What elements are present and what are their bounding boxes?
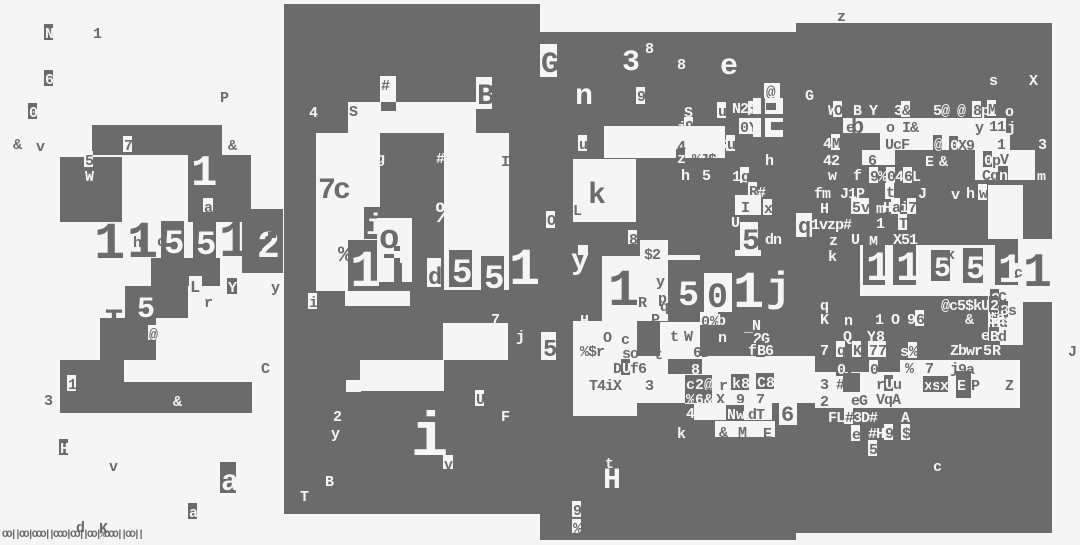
svg-text:H: H	[603, 464, 620, 498]
svg-text:6: 6	[638, 361, 647, 378]
svg-text:y: y	[975, 120, 984, 137]
svg-text:7: 7	[908, 200, 916, 217]
svg-text:0: 0	[740, 120, 749, 137]
svg-text:N: N	[45, 26, 54, 43]
svg-text:5: 5	[137, 293, 155, 327]
svg-text:4: 4	[309, 105, 318, 122]
svg-text:x: x	[940, 378, 949, 395]
svg-text:8: 8	[645, 41, 654, 58]
svg-text:g: g	[709, 330, 718, 347]
svg-text:z: z	[829, 233, 837, 250]
svg-text:U: U	[851, 232, 860, 249]
svg-text:w: w	[979, 186, 988, 203]
svg-text:P: P	[651, 312, 660, 329]
svg-text:1: 1	[875, 312, 884, 329]
svg-text:R: R	[992, 343, 1001, 360]
svg-text:5: 5	[164, 226, 184, 264]
svg-text:t: t	[654, 347, 662, 364]
svg-text:2: 2	[652, 247, 661, 264]
svg-text:#: #	[869, 410, 878, 427]
svg-text:s: s	[900, 344, 909, 361]
svg-text:v: v	[951, 187, 960, 204]
svg-text:1: 1	[866, 245, 891, 293]
svg-text:L: L	[836, 410, 845, 427]
svg-text:E: E	[763, 426, 772, 443]
svg-text:4: 4	[895, 169, 904, 186]
svg-text:n: n	[718, 330, 727, 347]
svg-text:5: 5	[196, 227, 216, 265]
svg-text:1: 1	[94, 215, 125, 274]
svg-text:g: g	[990, 168, 999, 185]
svg-text:5: 5	[852, 200, 861, 217]
svg-text:U: U	[476, 392, 485, 409]
svg-text:7c: 7c	[318, 174, 350, 208]
svg-text:S: S	[349, 104, 358, 121]
svg-text:5: 5	[966, 251, 985, 288]
svg-text:3: 3	[645, 378, 654, 395]
svg-text:H: H	[820, 201, 828, 218]
svg-text:9: 9	[637, 89, 646, 106]
svg-text:R: R	[638, 295, 647, 312]
svg-text:6: 6	[781, 403, 794, 428]
svg-text:r: r	[974, 343, 982, 360]
svg-text:@: @	[941, 103, 950, 120]
svg-text:1: 1	[896, 245, 921, 293]
svg-text:a: a	[189, 505, 198, 522]
svg-text:j: j	[766, 266, 791, 314]
svg-text:r: r	[596, 344, 604, 361]
svg-text:Y: Y	[228, 280, 237, 297]
svg-text:n: n	[773, 232, 782, 249]
svg-text:Y: Y	[869, 103, 878, 120]
svg-text:e: e	[852, 427, 861, 444]
svg-text:a: a	[204, 200, 213, 217]
svg-text:z: z	[837, 9, 845, 26]
svg-text:O: O	[547, 213, 556, 230]
svg-text:1: 1	[608, 262, 639, 321]
svg-text:0: 0	[701, 314, 710, 331]
svg-text:C: C	[261, 361, 270, 378]
svg-text:e: e	[720, 50, 737, 84]
svg-text:1: 1	[997, 119, 1006, 136]
svg-text:M: M	[988, 102, 997, 119]
svg-text:s: s	[1004, 313, 1013, 330]
svg-text:5: 5	[452, 255, 472, 293]
svg-text:w: w	[828, 168, 837, 185]
svg-text:6: 6	[765, 343, 774, 360]
svg-text:u: u	[579, 137, 587, 154]
svg-text:5: 5	[983, 343, 992, 360]
svg-text:s: s	[989, 73, 998, 90]
svg-text:&: &	[902, 103, 911, 120]
svg-text:A: A	[892, 392, 901, 409]
svg-text:6: 6	[45, 72, 54, 89]
svg-text:k: k	[732, 376, 741, 393]
svg-text:8: 8	[741, 376, 750, 393]
svg-text:F: F	[933, 329, 942, 346]
svg-text:8: 8	[629, 232, 638, 249]
svg-text:j: j	[516, 329, 524, 346]
svg-text:L: L	[912, 169, 921, 186]
svg-text:5: 5	[869, 442, 878, 459]
svg-text:OO||OO|OOO||OOO|CO||OO|%OOO||O: OO||OO|OOO||OOO|CO||OO|%OOO||OO||	[2, 529, 142, 540]
svg-text:y: y	[331, 426, 340, 443]
svg-text:&: &	[939, 154, 948, 171]
svg-text:3: 3	[622, 46, 639, 80]
svg-text:J: J	[1068, 344, 1076, 361]
svg-text:0: 0	[29, 105, 38, 122]
svg-text:E: E	[759, 137, 768, 154]
svg-text:@: @	[149, 327, 158, 344]
svg-text:4: 4	[686, 406, 695, 423]
svg-text:1: 1	[127, 214, 158, 273]
svg-text:1: 1	[93, 26, 102, 43]
svg-text:&: &	[13, 137, 22, 154]
svg-text:W: W	[85, 169, 94, 186]
svg-text:1: 1	[509, 241, 540, 300]
svg-text:M: M	[832, 136, 841, 153]
svg-text:7: 7	[925, 361, 933, 378]
svg-text:9: 9	[885, 426, 894, 443]
svg-text:x: x	[946, 247, 955, 264]
svg-text:c: c	[933, 459, 942, 476]
svg-text:f: f	[748, 343, 757, 360]
svg-text:B: B	[477, 80, 495, 114]
svg-text:n: n	[575, 80, 592, 114]
svg-text:C: C	[757, 375, 766, 392]
svg-text:v: v	[861, 200, 870, 217]
svg-text:L: L	[190, 279, 200, 298]
svg-text:8: 8	[677, 57, 686, 74]
svg-text:5: 5	[484, 261, 504, 299]
svg-text:D: D	[613, 361, 622, 378]
svg-text:&: &	[228, 138, 237, 155]
svg-text:a: a	[221, 466, 239, 500]
svg-text:j: j	[1007, 120, 1015, 137]
svg-text:&: &	[910, 120, 919, 137]
svg-text:&: &	[173, 394, 182, 411]
svg-text:r: r	[204, 295, 212, 312]
svg-text:E: E	[957, 378, 966, 395]
svg-text:1: 1	[191, 149, 217, 199]
svg-text:S: S	[718, 137, 727, 154]
svg-text:9: 9	[907, 312, 916, 329]
svg-text:W: W	[684, 329, 693, 346]
svg-text:u: u	[718, 104, 726, 121]
svg-text:2: 2	[820, 394, 829, 411]
svg-text:v: v	[36, 139, 45, 156]
svg-text:b: b	[717, 313, 726, 330]
svg-text:7: 7	[491, 312, 499, 329]
svg-text:3: 3	[1038, 137, 1047, 154]
svg-text:T: T	[300, 489, 309, 506]
svg-text:H: H	[60, 441, 68, 458]
svg-text:P: P	[220, 90, 229, 107]
svg-text:4: 4	[823, 136, 832, 153]
svg-text:$: $	[902, 426, 911, 443]
svg-text:T: T	[899, 216, 908, 233]
svg-text:D: D	[701, 345, 710, 362]
svg-text:o: o	[886, 120, 895, 137]
svg-text:g: g	[376, 151, 385, 168]
svg-text:G: G	[805, 88, 814, 105]
svg-text:7: 7	[878, 343, 886, 360]
svg-text:d: d	[428, 265, 442, 292]
svg-text:1: 1	[732, 169, 741, 186]
svg-text:5: 5	[543, 337, 557, 364]
svg-text:1: 1	[876, 216, 885, 233]
svg-text:h: h	[966, 186, 975, 203]
svg-text:I: I	[741, 200, 749, 217]
svg-text:1: 1	[1023, 247, 1052, 301]
svg-text:5: 5	[702, 168, 711, 185]
svg-text:t: t	[670, 329, 678, 346]
svg-text:K: K	[853, 343, 862, 360]
svg-text:7: 7	[124, 138, 132, 155]
svg-text:O: O	[834, 103, 843, 120]
svg-text:n: n	[999, 168, 1008, 185]
svg-text:b: b	[851, 115, 864, 140]
svg-text:%: %	[436, 198, 455, 232]
svg-text:1: 1	[68, 377, 77, 394]
svg-text:y: y	[656, 274, 665, 291]
svg-text:z: z	[677, 151, 685, 168]
svg-text:3: 3	[44, 393, 53, 410]
svg-text:$: $	[708, 152, 717, 169]
svg-text:q: q	[660, 299, 668, 316]
svg-text:k: k	[588, 179, 606, 213]
svg-text:F: F	[901, 137, 910, 154]
svg-text:7: 7	[820, 343, 828, 360]
svg-text:q: q	[798, 215, 811, 240]
svg-text:F: F	[501, 409, 510, 426]
svg-text:f: f	[853, 168, 862, 185]
svg-text:2: 2	[740, 101, 749, 118]
svg-text:X: X	[1029, 73, 1038, 90]
svg-text:k: k	[828, 249, 837, 266]
svg-text:@: @	[934, 137, 943, 154]
svg-text:#: #	[436, 151, 445, 168]
svg-text:O: O	[891, 312, 900, 329]
svg-text:n: n	[844, 313, 853, 330]
svg-text:L: L	[573, 203, 582, 220]
svg-text:o: o	[379, 221, 399, 259]
svg-text:7: 7	[869, 343, 877, 360]
svg-text:x: x	[764, 201, 773, 218]
svg-text:c: c	[1014, 265, 1023, 282]
svg-text:#: #	[381, 78, 390, 95]
svg-text:M: M	[738, 425, 747, 442]
svg-text:U: U	[731, 215, 740, 232]
svg-text:G: G	[541, 48, 558, 82]
svg-text:1: 1	[733, 264, 764, 323]
svg-text:&: &	[719, 425, 728, 442]
svg-text:i: i	[309, 295, 318, 312]
svg-text:i: i	[411, 403, 448, 474]
svg-text:J: J	[918, 186, 926, 203]
svg-text:@: @	[957, 103, 966, 120]
svg-text:q: q	[837, 343, 845, 360]
svg-text:Z: Z	[1005, 378, 1014, 395]
svg-text:h: h	[765, 153, 774, 170]
svg-text:H: H	[883, 200, 891, 217]
svg-text:9: 9	[573, 503, 582, 520]
svg-text:G: G	[859, 393, 868, 410]
svg-text:P: P	[971, 378, 980, 395]
svg-text:B: B	[325, 474, 334, 491]
svg-text:T: T	[105, 305, 123, 339]
svg-text:X: X	[613, 378, 622, 395]
svg-text:1: 1	[219, 213, 250, 272]
svg-text:v: v	[109, 459, 118, 476]
svg-text:3: 3	[820, 377, 829, 394]
svg-text:8: 8	[766, 375, 775, 392]
svg-text:y: y	[271, 280, 280, 297]
svg-text:H: H	[876, 426, 884, 443]
svg-text:9: 9	[966, 138, 975, 155]
svg-text:h: h	[681, 168, 690, 185]
svg-text:I: I	[501, 154, 509, 171]
svg-text:&: &	[965, 312, 974, 329]
svg-text:E: E	[925, 154, 934, 171]
svg-text:k: k	[677, 426, 686, 443]
svg-text:v: v	[444, 457, 453, 474]
svg-text:K: K	[820, 312, 829, 329]
svg-text:2: 2	[333, 409, 342, 426]
svg-text:6: 6	[916, 312, 925, 329]
svg-text:5: 5	[678, 276, 699, 316]
